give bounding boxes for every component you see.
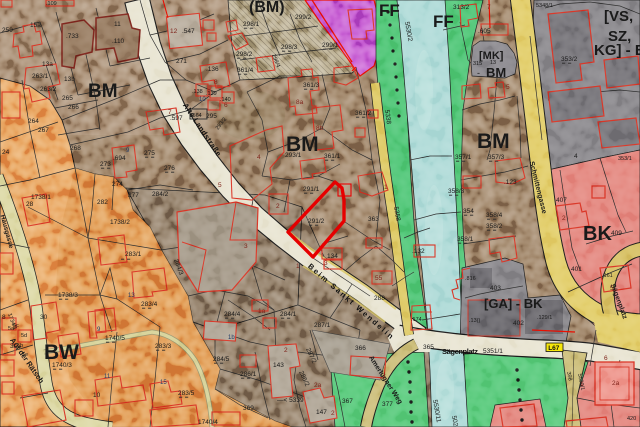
- svg-text:[VS,: [VS,: [604, 8, 633, 25]
- svg-text:—< 5339: —< 5339: [277, 397, 304, 404]
- svg-text:284/2: 284/2: [152, 191, 169, 198]
- svg-text:3: 3: [324, 260, 328, 267]
- svg-text:.13(): .13(): [469, 318, 480, 324]
- svg-text:.136: .136: [206, 66, 219, 73]
- svg-text:298/3: 298/3: [281, 44, 298, 51]
- svg-text:BW: BW: [44, 341, 79, 364]
- svg-text:361/4: 361/4: [237, 67, 254, 74]
- svg-text:.132: .132: [412, 248, 425, 255]
- svg-text:12: 12: [170, 28, 178, 35]
- svg-text:5: 5: [218, 182, 222, 189]
- svg-text:.733: .733: [66, 33, 79, 40]
- svg-text:15a: 15a: [30, 22, 41, 29]
- svg-text:4: 4: [257, 154, 261, 161]
- svg-text:55: 55: [375, 275, 383, 282]
- svg-text:287/1: 287/1: [314, 322, 331, 329]
- svg-text:267: 267: [38, 127, 49, 134]
- svg-text:403: 403: [490, 285, 501, 292]
- svg-text:BM: BM: [477, 130, 510, 153]
- svg-text:271: 271: [176, 58, 187, 65]
- svg-text:299/2: 299/2: [295, 14, 312, 21]
- svg-text:282: 282: [97, 199, 108, 206]
- svg-text:BM: BM: [88, 81, 118, 102]
- svg-text:1: 1: [580, 381, 584, 388]
- svg-text:358/3: 358/3: [448, 188, 465, 195]
- svg-text:15: 15: [160, 380, 167, 386]
- svg-text:5: 5: [506, 84, 510, 91]
- svg-text:.109: .109: [46, 1, 57, 7]
- svg-text:284/4: 284/4: [224, 311, 241, 318]
- svg-text:13: 13: [490, 60, 496, 66]
- svg-text:.547: .547: [182, 28, 195, 35]
- svg-text:276: 276: [164, 165, 175, 172]
- svg-text:BK: BK: [583, 223, 612, 245]
- svg-text:2: 2: [562, 215, 566, 222]
- svg-text:3/3: 3/3: [10, 343, 19, 350]
- svg-text:13a: 13a: [42, 61, 53, 68]
- svg-text:.694: .694: [113, 155, 126, 162]
- svg-text:24: 24: [2, 149, 10, 156]
- svg-text:295: 295: [206, 113, 217, 120]
- svg-text:[GA] - BK: [GA] - BK: [484, 296, 543, 311]
- svg-text:13: 13: [128, 293, 135, 299]
- svg-text:277: 277: [128, 192, 139, 199]
- svg-text:1740/3: 1740/3: [52, 362, 72, 369]
- svg-text:357/3: 357/3: [488, 154, 505, 161]
- svg-text:FF: FF: [379, 1, 400, 20]
- svg-text:134: 134: [327, 253, 338, 260]
- svg-text:2: 2: [284, 347, 288, 354]
- svg-text:Sägenplatz: Sägenplatz: [442, 347, 478, 356]
- svg-text:361/1: 361/1: [324, 153, 341, 160]
- svg-text:2: 2: [276, 203, 280, 210]
- svg-text:353/2: 353/2: [561, 56, 578, 63]
- svg-text:8a: 8a: [296, 99, 304, 106]
- svg-text:10: 10: [93, 392, 101, 399]
- svg-text:377: 377: [382, 401, 393, 408]
- svg-text:L67: L67: [548, 345, 560, 352]
- svg-text:315: 315: [473, 61, 482, 67]
- svg-text:298/2: 298/2: [236, 51, 253, 58]
- svg-text:8: 8: [214, 79, 218, 86]
- svg-text:402: 402: [513, 320, 524, 327]
- svg-text:275: 275: [144, 150, 155, 157]
- svg-text:1738/3: 1738/3: [58, 292, 78, 299]
- svg-text:11: 11: [114, 21, 121, 28]
- svg-text:274: 274: [112, 181, 123, 188]
- svg-text:284/1: 284/1: [280, 311, 297, 318]
- svg-text:5e: 5e: [22, 352, 28, 358]
- svg-text:284/5: 284/5: [213, 356, 230, 363]
- svg-text:2a: 2a: [314, 382, 322, 389]
- svg-text:7: 7: [487, 4, 491, 11]
- svg-text:.564: .564: [191, 113, 202, 119]
- svg-text:.816: .816: [465, 276, 476, 282]
- svg-text:-: -: [477, 68, 480, 78]
- svg-text:5348/1: 5348/1: [536, 3, 553, 9]
- svg-text:3: 3: [244, 243, 248, 250]
- svg-text:266: 266: [68, 104, 79, 111]
- svg-text:8b: 8b: [316, 125, 324, 132]
- svg-text:283/1: 283/1: [125, 251, 142, 258]
- svg-text:.123: .123: [504, 179, 517, 186]
- svg-text:363: 363: [368, 216, 379, 223]
- svg-text:286/1: 286/1: [240, 371, 257, 378]
- svg-text:.597: .597: [170, 115, 183, 122]
- svg-text:1740/5: 1740/5: [105, 335, 125, 342]
- svg-text:4: 4: [574, 153, 578, 160]
- svg-text:.139: .139: [206, 91, 217, 97]
- svg-text:291/2: 291/2: [308, 218, 325, 225]
- svg-text:409: 409: [611, 230, 622, 237]
- svg-text:353/1: 353/1: [618, 156, 632, 162]
- svg-text:264: 264: [28, 118, 39, 125]
- svg-text:.605: .605: [478, 28, 491, 35]
- svg-text:28: 28: [26, 201, 34, 208]
- svg-text:5: 5: [610, 285, 614, 292]
- svg-text:10: 10: [199, 97, 206, 103]
- svg-text:FF: FF: [433, 12, 454, 31]
- svg-text:5351/1: 5351/1: [483, 348, 503, 355]
- svg-text:30: 30: [40, 314, 48, 321]
- svg-text:298/1: 298/1: [243, 21, 260, 28]
- svg-text:283/3: 283/3: [155, 343, 172, 350]
- svg-text:6: 6: [224, 102, 228, 109]
- svg-text:283/5: 283/5: [178, 390, 195, 397]
- svg-text:1a: 1a: [258, 308, 266, 315]
- svg-text:273: 273: [100, 161, 111, 168]
- svg-text:367: 367: [342, 398, 353, 405]
- svg-text:.110: .110: [112, 38, 125, 45]
- svg-text:1: 1: [384, 184, 388, 191]
- svg-text:6: 6: [604, 355, 608, 362]
- svg-text:265: 265: [62, 95, 73, 102]
- svg-text:283/4: 283/4: [141, 301, 158, 308]
- svg-text:263/1: 263/1: [32, 73, 49, 80]
- svg-text:1738/2: 1738/2: [110, 219, 130, 226]
- svg-text:358/1: 358/1: [457, 236, 474, 243]
- svg-text:358/4: 358/4: [486, 212, 503, 219]
- svg-text:361/3: 361/3: [303, 82, 320, 89]
- svg-text:BM: BM: [486, 65, 506, 80]
- svg-text:366: 366: [355, 345, 366, 352]
- svg-text:361/2: 361/2: [355, 110, 372, 117]
- svg-text:.174: .174: [411, 317, 422, 323]
- svg-text:263/2: 263/2: [40, 86, 57, 93]
- svg-text:2: 2: [331, 410, 335, 417]
- svg-text:1: 1: [296, 263, 300, 270]
- svg-text:365: 365: [423, 344, 434, 351]
- svg-text:5d: 5d: [21, 333, 27, 339]
- svg-text:13b: 13b: [64, 76, 75, 83]
- svg-text:2a: 2a: [612, 380, 620, 387]
- svg-text:259: 259: [2, 27, 13, 34]
- svg-text:288: 288: [374, 295, 385, 302]
- svg-text:1738/1: 1738/1: [31, 194, 51, 201]
- svg-text:1b: 1b: [228, 335, 235, 341]
- svg-text:420: 420: [627, 416, 636, 422]
- svg-text:401: 401: [571, 266, 582, 273]
- svg-text:369: 369: [243, 405, 254, 412]
- svg-text:299/1: 299/1: [322, 42, 339, 49]
- svg-text:.138: .138: [192, 89, 203, 95]
- svg-text:1740/4: 1740/4: [198, 419, 218, 426]
- svg-text:11: 11: [104, 374, 111, 380]
- svg-text:291/1: 291/1: [303, 186, 320, 193]
- svg-text:357/1: 357/1: [455, 154, 472, 161]
- svg-text:313/2: 313/2: [453, 4, 470, 11]
- svg-text:147: 147: [316, 409, 327, 416]
- svg-text:293/1: 293/1: [285, 152, 302, 159]
- svg-text:(BM): (BM): [249, 0, 285, 16]
- svg-text:KG] - BM: KG] - BM: [594, 42, 640, 59]
- svg-text:354: 354: [463, 208, 474, 215]
- svg-text:.129/1: .129/1: [537, 315, 552, 321]
- svg-text:268: 268: [70, 145, 81, 152]
- svg-text:407: 407: [556, 197, 567, 204]
- svg-text:143: 143: [273, 362, 284, 369]
- svg-text:358/2: 358/2: [486, 223, 503, 230]
- svg-text:8: 8: [2, 314, 6, 321]
- svg-text:.161: .161: [602, 273, 613, 279]
